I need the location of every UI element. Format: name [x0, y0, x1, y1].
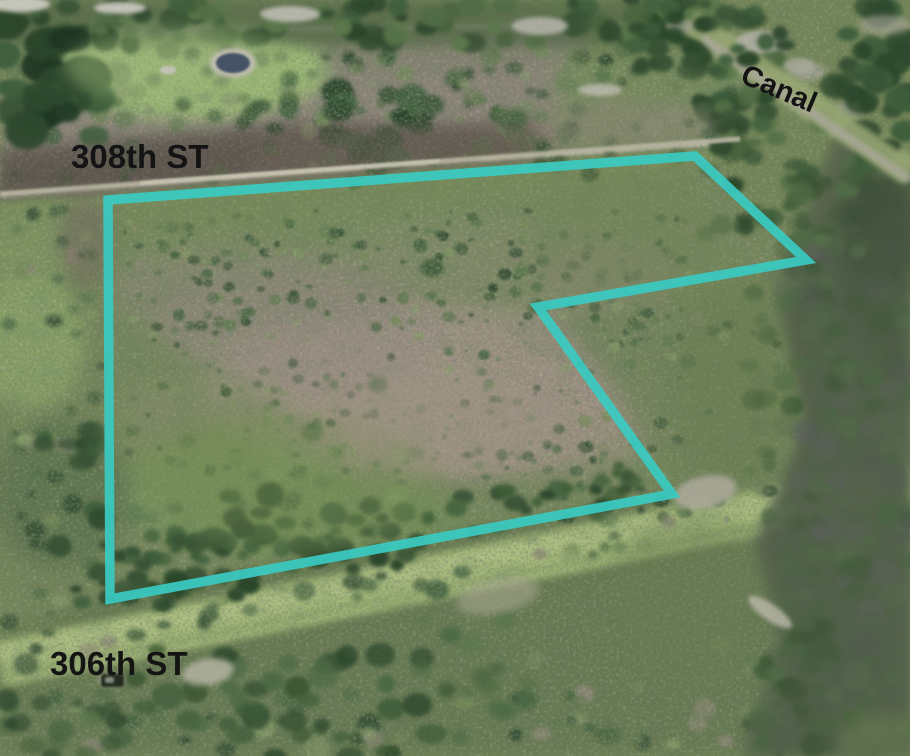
svg-text:306th ST: 306th ST: [50, 645, 188, 682]
svg-text:308th ST: 308th ST: [71, 138, 209, 175]
